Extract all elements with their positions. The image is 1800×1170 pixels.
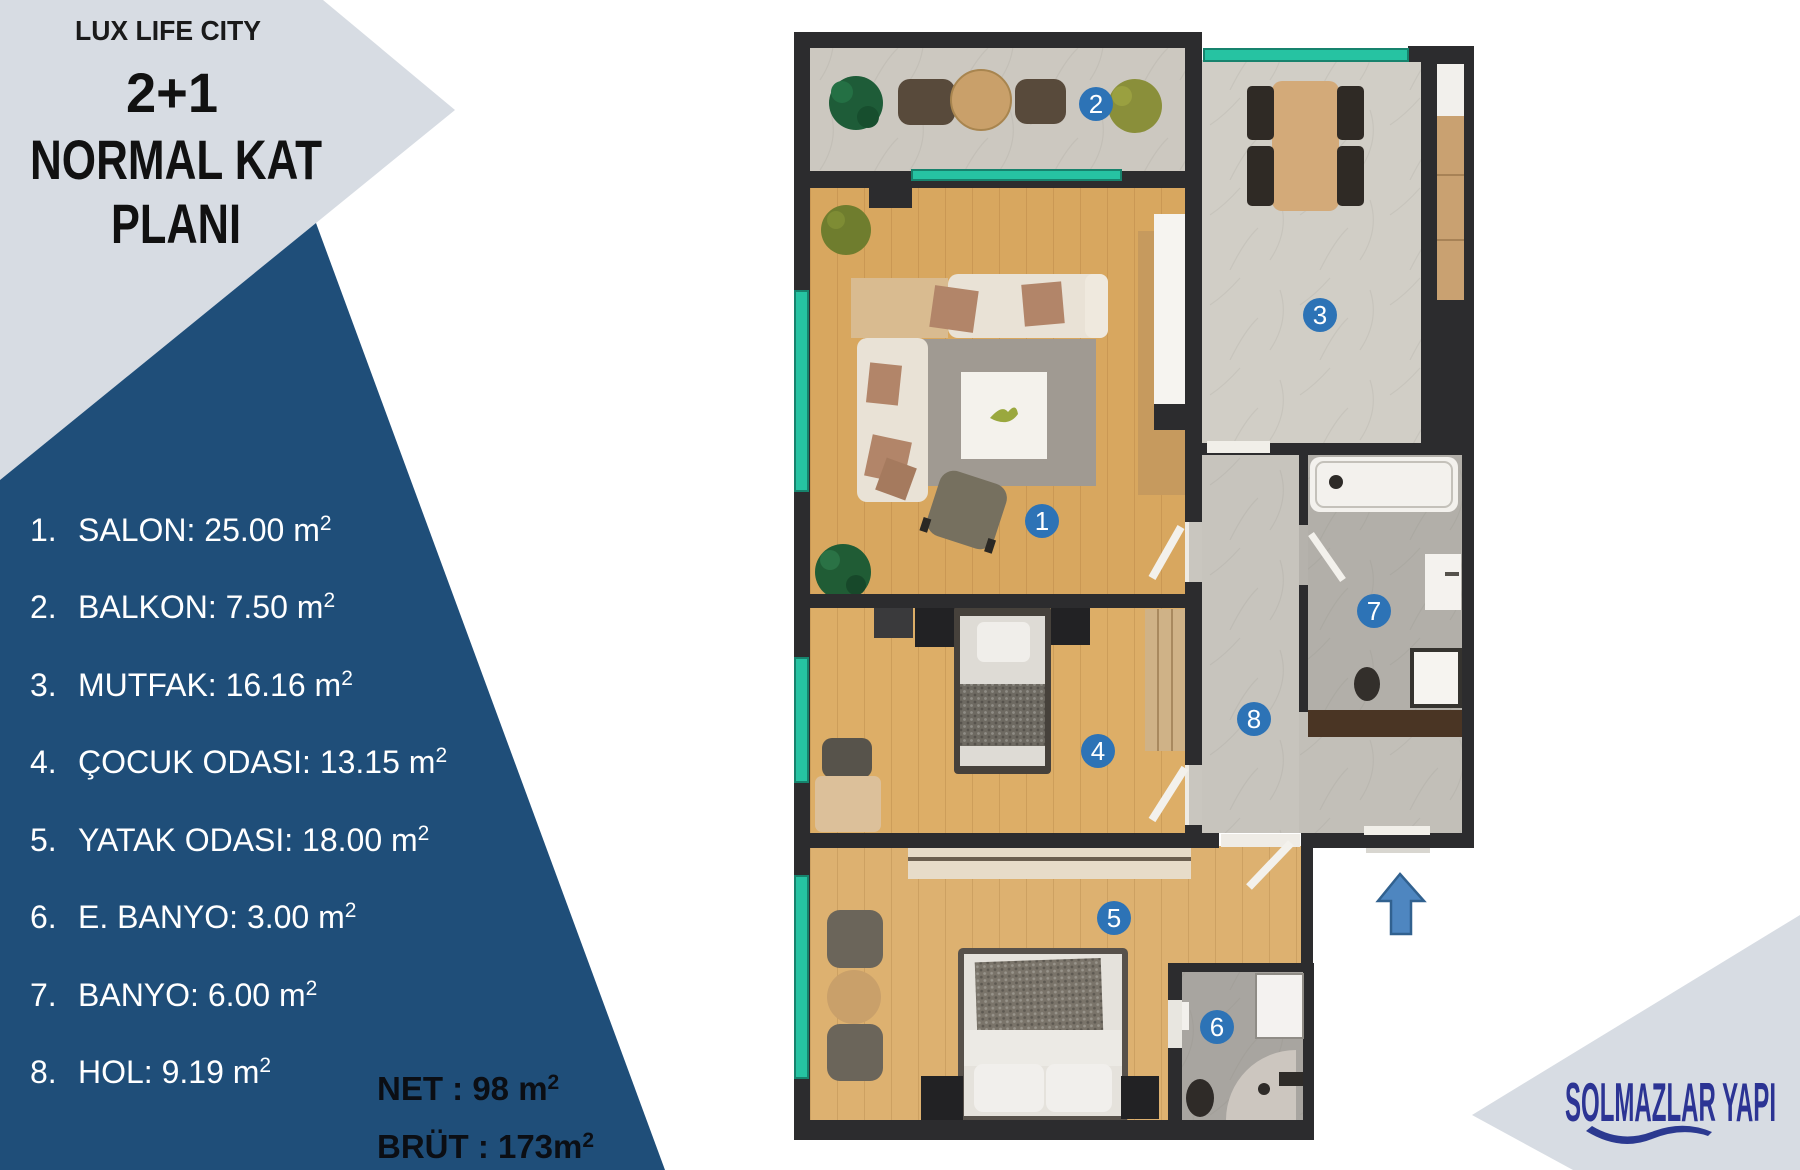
svg-text:1: 1 (1035, 506, 1049, 536)
svg-text:3.: 3. (30, 667, 57, 703)
svg-text:2+1: 2+1 (126, 61, 218, 124)
svg-text:5: 5 (1107, 903, 1121, 933)
svg-text:BANYO: 6.00 m2: BANYO: 6.00 m2 (78, 977, 317, 1013)
svg-text:LUX LIFE CITY: LUX LIFE CITY (75, 15, 261, 46)
svg-text:NET : 98 m2: NET : 98 m2 (377, 1070, 559, 1107)
svg-text:3: 3 (1313, 300, 1327, 330)
svg-text:PLANI: PLANI (111, 192, 241, 255)
svg-text:BALKON: 7.50 m2: BALKON: 7.50 m2 (78, 589, 335, 625)
svg-text:ÇOCUK ODASI: 13.15 m2: ÇOCUK ODASI: 13.15 m2 (78, 744, 447, 780)
svg-text:6: 6 (1210, 1012, 1224, 1042)
svg-text:HOL: 9.19 m2: HOL: 9.19 m2 (78, 1054, 271, 1090)
svg-text:E. BANYO: 3.00 m2: E. BANYO: 3.00 m2 (78, 899, 356, 935)
svg-text:NORMAL KAT: NORMAL KAT (30, 128, 322, 191)
svg-text:5.: 5. (30, 822, 57, 858)
svg-text:4: 4 (1091, 736, 1105, 766)
svg-text:BRÜT : 173m2: BRÜT : 173m2 (377, 1128, 594, 1165)
svg-text:1.: 1. (30, 512, 57, 548)
svg-text:MUTFAK: 16.16 m2: MUTFAK: 16.16 m2 (78, 667, 353, 703)
svg-text:YATAK ODASI: 18.00 m2: YATAK ODASI: 18.00 m2 (78, 822, 429, 858)
svg-text:4.: 4. (30, 744, 57, 780)
svg-text:8: 8 (1247, 704, 1261, 734)
svg-text:6.: 6. (30, 899, 57, 935)
svg-text:SOLMAZLAR YAPI: SOLMAZLAR YAPI (1565, 1071, 1776, 1133)
svg-text:2: 2 (1089, 89, 1103, 119)
svg-text:7.: 7. (30, 977, 57, 1013)
svg-text:SALON: 25.00 m2: SALON: 25.00 m2 (78, 512, 332, 548)
svg-text:7: 7 (1367, 596, 1381, 626)
svg-text:2.: 2. (30, 589, 57, 625)
svg-text:8.: 8. (30, 1054, 57, 1090)
